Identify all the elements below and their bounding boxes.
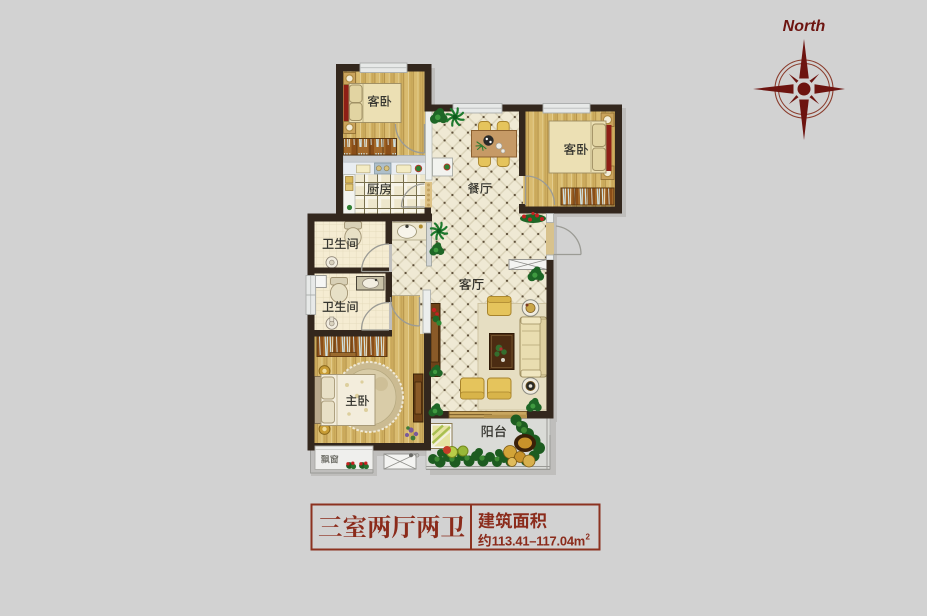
svg-text:113.41–117.04m: 113.41–117.04m [492,534,585,549]
svg-text:2: 2 [586,533,591,542]
svg-text:North: North [783,18,826,35]
